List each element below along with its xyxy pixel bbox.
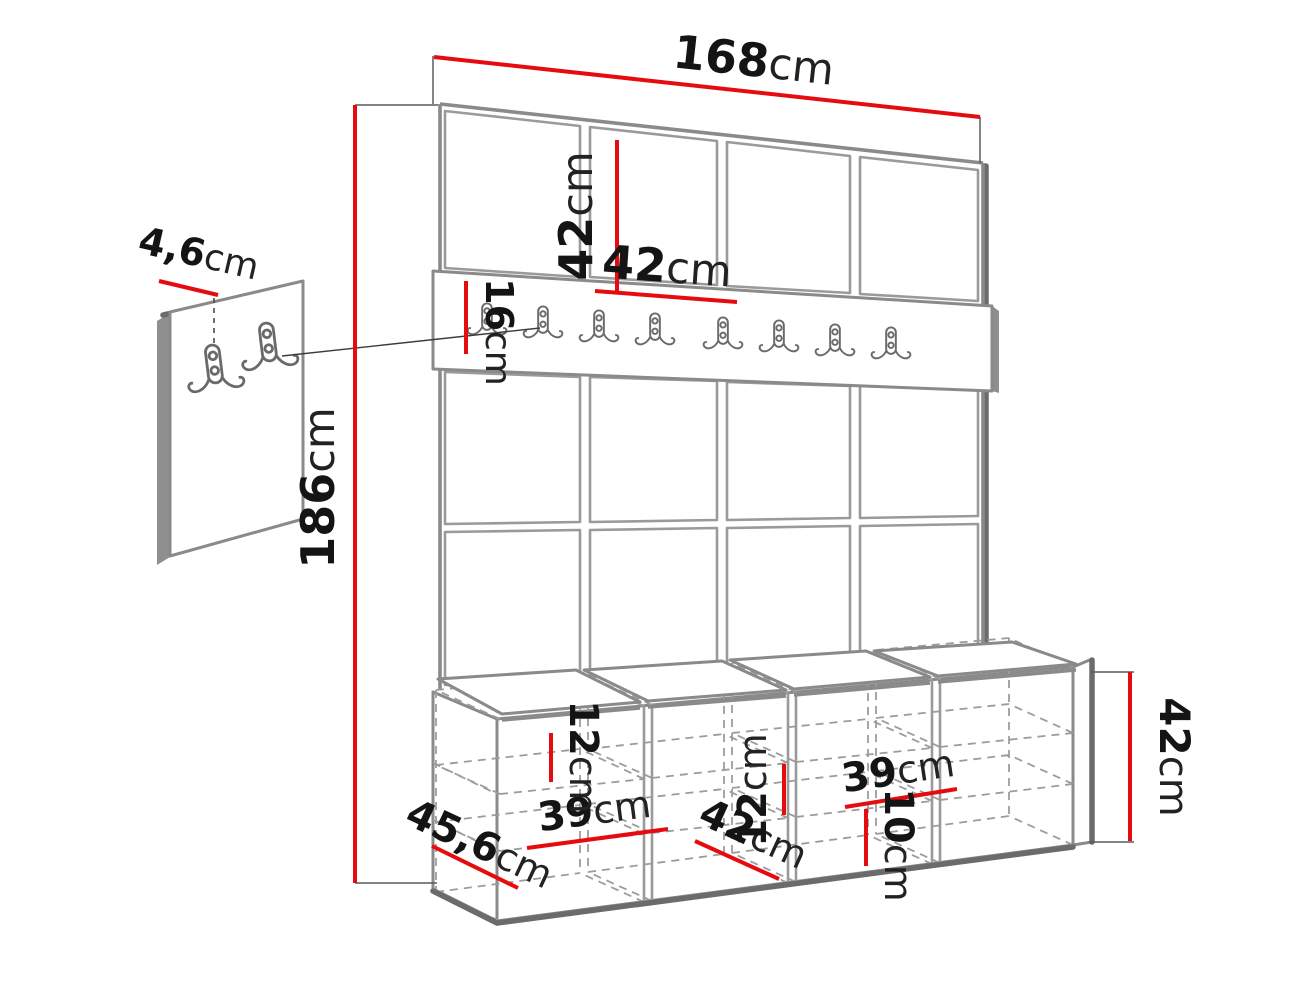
furniture-dimension-diagram: 168cm 186cm 42cm 42cm 16cm 4,6cm 45,6cm …: [0, 0, 1310, 982]
dim-label-panel-depth: 4,6cm: [134, 218, 263, 288]
panel-tile: [860, 524, 978, 660]
dim-label-tile-height: 42cm: [549, 151, 603, 281]
dim-label-plinth-height: 10cm: [875, 788, 921, 902]
panel-tile: [727, 526, 850, 668]
wall-hook-panel-front-face: [170, 281, 303, 556]
dim-label-bench-height: 42cm: [1150, 697, 1199, 816]
wall-hook-panel: [157, 281, 303, 565]
panel-tile: [590, 377, 717, 522]
dim-line-panel-depth: [159, 281, 218, 295]
panel-tile: [590, 528, 717, 677]
dim-label-shelf-gap-mid: 12cm: [730, 733, 776, 847]
panel-tile: [727, 142, 850, 293]
dim-hook-panel-depth: 4,6cm: [134, 218, 263, 295]
dim-total-height: 186cm: [291, 105, 438, 883]
dim-label-rail-height: 16cm: [477, 278, 521, 386]
dim-bench-height: 42cm: [1089, 672, 1199, 842]
wall-hook-panel-side-face: [157, 313, 170, 565]
bench-right-end-face: [1073, 659, 1092, 845]
panel-tile: [727, 382, 850, 520]
panel-tile: [860, 157, 978, 301]
panel-tile: [445, 372, 580, 524]
diagram-canvas: 168cm 186cm 42cm 42cm 16cm 4,6cm 45,6cm …: [0, 0, 1310, 982]
panel-wall: [440, 104, 986, 690]
dim-label-total-height: 186cm: [291, 407, 345, 569]
panel-tile: [445, 530, 580, 685]
panel-tile: [860, 386, 978, 518]
dim-label-shelf-gap-left: 12cm: [560, 700, 606, 814]
